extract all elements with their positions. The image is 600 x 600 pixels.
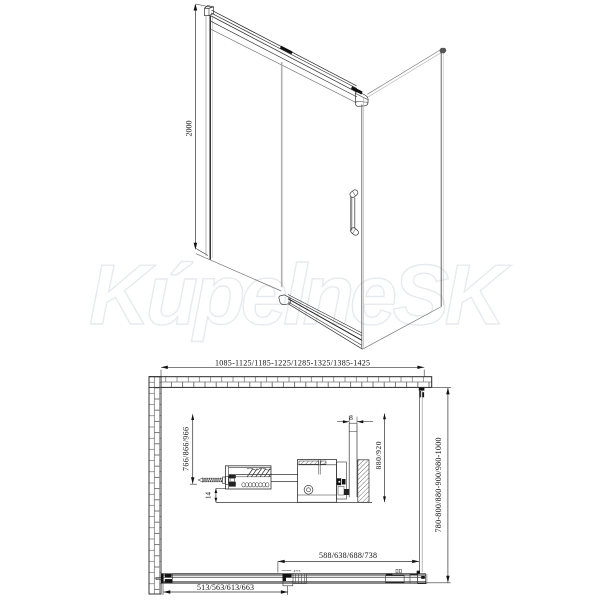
svg-text:8: 8 bbox=[349, 413, 353, 422]
svg-text:588/638/688/738: 588/638/688/738 bbox=[319, 551, 377, 560]
svg-text:14: 14 bbox=[204, 492, 212, 500]
svg-text:780-800/880-900/980-1000: 780-800/880-900/980-1000 bbox=[434, 438, 443, 533]
svg-text:2000: 2000 bbox=[185, 121, 194, 137]
svg-text:1085-1125/1185-1225/1285-1325/: 1085-1125/1185-1225/1285-1325/1385-1425 bbox=[215, 358, 370, 367]
svg-text:47±5: 47±5 bbox=[294, 569, 301, 573]
svg-text:880/920: 880/920 bbox=[374, 441, 383, 469]
svg-text:513/563/613/663: 513/563/613/663 bbox=[197, 583, 254, 592]
svg-text:766/866/966: 766/866/966 bbox=[181, 427, 190, 471]
svg-text:KúpelneSK: KúpelneSK bbox=[89, 248, 512, 343]
